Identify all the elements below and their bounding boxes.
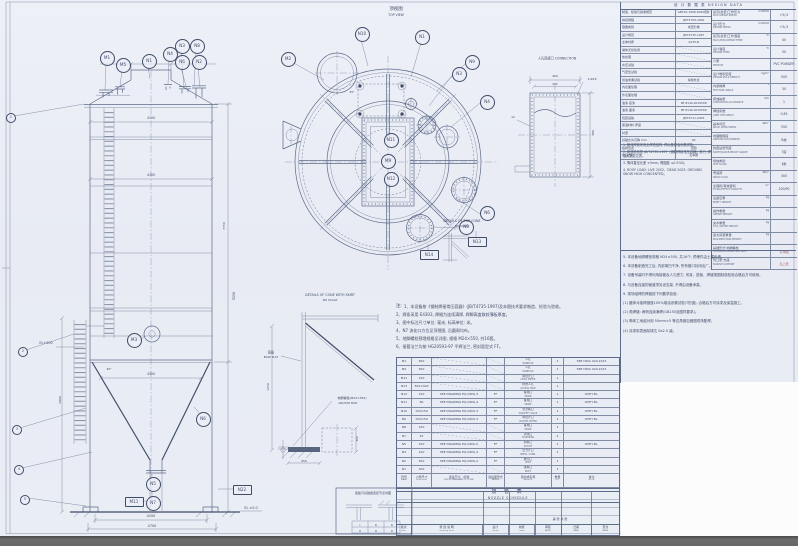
- schedule-cell: WITH BL.: [564, 399, 619, 406]
- schedule-cell: 1: [552, 458, 564, 465]
- nozzle-schedule-row: M2500人孔MANHOLE1SEE DWG 020-2013: [397, 366, 619, 374]
- item: QTY: [552, 479, 563, 482]
- note-line: 9. 现场组焊的焊缝按下列要求检验:: [623, 290, 794, 299]
- design-data-label: 介质MEDIUM: [712, 59, 770, 70]
- schedule-cell: [432, 366, 487, 373]
- design-data-value: [675, 47, 711, 54]
- note-line: 6、接管法兰均按 HG20593-97 平焊法兰, 密封面型式 FF。: [396, 343, 618, 351]
- schedule-cell: [432, 358, 487, 365]
- note-line: 4、N7 流化口方位见顶视图, 沿圆周均布。: [396, 327, 618, 335]
- design-data-label: 保温材料·厚度: [621, 122, 675, 129]
- design-data-row: 包装运输JB/T4711-2003: [621, 115, 711, 123]
- schedule-cell: [487, 366, 505, 373]
- schedule-cell: N2: [397, 458, 412, 465]
- schedule-cell: 1: [552, 366, 564, 373]
- design-data-row: 抗震设防烈度EARTHQUAKE-PROOF GRADE7度: [712, 146, 797, 158]
- design-data-label: 气密性试验: [621, 69, 675, 76]
- drawing-label: 4100: [147, 173, 155, 177]
- revision-label-cell: 设计DSGN: [483, 525, 509, 536]
- schedule-cell: N1: [397, 466, 412, 473]
- nozzle-balloon-3: 3: [12, 425, 22, 435]
- schedule-cell: [487, 424, 505, 431]
- schedule-cell: 150/150: [412, 416, 432, 423]
- service-cell: 进料口INLET: [505, 466, 552, 473]
- schedule-cell: [432, 433, 487, 440]
- design-data-value: [675, 62, 711, 69]
- item: SNOW LOAD: [713, 176, 770, 180]
- design-data-value: +5/-5: [770, 21, 797, 32]
- nozzle-schedule-table: M1500人孔MANHOLE1SEE DWG 020-2013M2500人孔MA…: [396, 357, 620, 503]
- drawing-label: 6: [375, 523, 377, 527]
- design-data-value: [675, 92, 711, 99]
- design-data-row: 气密性试验: [621, 69, 711, 77]
- schedule-cell: 500×400: [412, 383, 432, 390]
- schedule-cell: WITH BL.: [564, 441, 619, 448]
- design-data-label: 油漆·面漆: [621, 107, 675, 114]
- schedule-cell: FF: [487, 441, 505, 448]
- nozzle-balloon-n9: N9: [465, 55, 480, 70]
- item: EMPTY WEIGHT: [713, 201, 770, 205]
- schedule-cell: [432, 375, 487, 382]
- service-cell: 流化口FLUIDIZING: [505, 433, 552, 440]
- drawing-label: TOP VIEW: [388, 13, 404, 17]
- nozzle-balloon-m9: M9: [381, 154, 396, 169]
- schedule-cell: 250: [412, 441, 432, 448]
- nozzle-schedule-row: N1180SEE DRAWING EQ-DWG-4FF备用口SPARE1WITH…: [397, 399, 619, 407]
- schedule-cell: [432, 466, 487, 473]
- design-data-value: [675, 130, 711, 137]
- nozzle-schedule-row: N725流化口FLUIDIZING4: [397, 433, 619, 441]
- design-data-value: JB/T4711-2003: [675, 115, 711, 122]
- schedule-cell: SEE DRAWING EQ-DWG-2: [432, 458, 487, 465]
- item: MEDIUM: [713, 64, 770, 68]
- nozzle-schedule-row: N9150/150SEE DRAWING EQ-DWG-3FF料位计口W/LEV…: [397, 416, 619, 424]
- drawing-label: DETAILS OF TOP CONE: [443, 219, 480, 223]
- item: OUTLET: [505, 445, 551, 448]
- note-line: 3、图中标注尺寸单位: 毫米, 标高单位: 米。: [396, 319, 618, 327]
- design-data-label: 抗震设防烈度EARTHQUAKE-PROOF GRADE: [712, 146, 770, 157]
- scanner-bed-edge: [0, 536, 798, 546]
- schedule-cell: FF: [487, 449, 505, 456]
- design-data-value: [770, 233, 797, 244]
- design-data-value: [675, 122, 711, 129]
- schedule-header-cell: 符号MARK: [397, 474, 412, 487]
- schedule-cell: [564, 375, 619, 382]
- note-line: 1. 罐体焊缝采用全焊透结构, 焊后做煤油渗漏试验。: [623, 143, 711, 148]
- item: CHKD: [509, 530, 534, 533]
- design-data-value: 500: [770, 71, 797, 82]
- drawing-label: 12: [511, 115, 515, 119]
- design-data-row: 设计压力mmH2ODESIGN PRESS.+5/-5: [712, 21, 797, 33]
- schedule-cell: N9: [397, 416, 412, 423]
- design-data-label: 设计堆积密度kg/m³DESIGN BULK DENSITY: [712, 71, 770, 82]
- nozzle-balloon-m11: M11: [125, 497, 144, 507]
- design-data-row: 热处理: [621, 54, 711, 62]
- nozzle-balloon-n1: N1: [142, 54, 157, 69]
- drawing-label: 4100: [147, 116, 155, 120]
- design-data-row: 全容积/有效容积m³TOTAL/EFFECT.CAPACITY100/90: [712, 183, 797, 195]
- item: MANHOLE: [505, 362, 551, 365]
- note-line: 1、本设备按《钢制焊接常压容器》(JB/T4735-1997)及本图技术要求制造…: [396, 303, 618, 311]
- schedule-cell: N10: [397, 408, 412, 415]
- design-data-label: 包装运输: [621, 115, 675, 122]
- drawing-label: 2-Φ18: [588, 77, 597, 81]
- design-data-label: 设计压力mmH2ODESIGN PRESS.: [712, 21, 770, 32]
- design-data-value: +5/-5: [770, 9, 797, 20]
- schedule-cell: [487, 466, 505, 473]
- service-cell: 备用口SPARE: [505, 391, 552, 398]
- note-line: 5、地脚螺栓预埋规格见详图, 规格 M24×550, 共16套。: [396, 335, 618, 343]
- drawing-label: 460: [552, 74, 558, 78]
- revision-label-cell: 校核CHKD: [509, 525, 535, 536]
- nozzle-balloon-n11: N11: [384, 133, 399, 148]
- note-line: 5. 本设备地脚螺栓规格 M24×550, 共16个, 预埋件由土建负责。: [623, 253, 794, 262]
- service-cell: 备用口SPARE: [505, 399, 552, 406]
- item: DESIGN TEMP.: [713, 51, 770, 55]
- notes-lines: 1、本设备按《钢制焊接常压容器》(JB/T4735-1997)及本图技术要求制造…: [396, 303, 618, 351]
- schedule-cell: N13: [397, 383, 412, 390]
- nozzle-schedule-row: M1500人孔MANHOLE1SEE DWG 020-2013: [397, 358, 619, 366]
- design-data-row: 内摩擦角°FRICTION ANGLE30: [712, 84, 797, 96]
- schedule-cell: [487, 358, 505, 365]
- design-data-label: 设备空重kgEMPTY WEIGHT: [712, 196, 770, 207]
- revision-label-cell: 页次PAGE: [592, 525, 619, 536]
- revision-label-cell: 版次REV.: [397, 525, 412, 536]
- drawing-label: DETAILS OF CONE WITH SKIRT: [305, 293, 355, 297]
- design-data-row: 衬里: [621, 130, 711, 138]
- design-data-value: 焊缝检查: [675, 77, 711, 84]
- design-data-label: 操作重量kgOPERAT.WEIGHT: [712, 208, 770, 219]
- schedule-cell: N11: [397, 399, 412, 406]
- revision-grid: [397, 492, 619, 524]
- schedule-cell: 1: [552, 416, 564, 423]
- item: PRESS. CONN.: [505, 453, 551, 456]
- design-data-label: 最大吊装重量kgMAX.ERECTION WEIGHT: [712, 233, 770, 244]
- drawing-label: 300: [355, 436, 359, 441]
- drawing-label: 425: [552, 82, 557, 86]
- nozzle-balloon-n2: N2: [192, 55, 207, 70]
- schedule-cell: N12: [397, 391, 412, 398]
- design-data-value: 0.85: [770, 109, 797, 120]
- schedule-cell: 1: [552, 399, 564, 406]
- note-line: 7. 设备吊装时不得利用接管及人孔受力, 吊耳、垫板、焊缝按图制造检验合格后方可…: [623, 271, 794, 280]
- design-data-value: 7度: [770, 146, 797, 157]
- design-data-value: PE 8140-2010509: [675, 107, 711, 114]
- schedule-cell: FF: [487, 408, 505, 415]
- design-data-row: 设计温度℃DESIGN TEMP.50: [712, 46, 797, 58]
- design-data-row: 保温材料·厚度: [621, 122, 711, 130]
- item: W/LEVEL METER: [505, 420, 551, 423]
- design-data-value: 300: [770, 171, 797, 182]
- item: MANHOLE: [505, 370, 551, 373]
- design-data-value: 100/90: [770, 183, 797, 194]
- item: LEVEL METER: [505, 378, 551, 381]
- item: NOTE: [564, 479, 619, 482]
- design-data-value: PVC POWDER: [770, 59, 797, 70]
- design-data-row: 最高(最低)工作温度℃MAX.(MIN.)OPERAT.TEMP40: [712, 34, 797, 46]
- nozzle-schedule-row: N13500×400检修人孔ACCESS HOLE1: [397, 383, 619, 391]
- schedule-cell: N8: [397, 424, 412, 431]
- nozzle-balloon-2: 2: [18, 347, 28, 357]
- schedule-cell: 300: [412, 466, 432, 473]
- design-data-row: 场地类别SITE CLASSⅡ类: [712, 158, 797, 170]
- nozzle-schedule-row: N8150备用口SPARE1: [397, 424, 619, 432]
- design-data-label: 焊缝系数JOINT EFFICIENCY: [712, 109, 770, 120]
- schedule-cell: 150/150: [412, 408, 432, 415]
- schedule-cell: [564, 449, 619, 456]
- schedule-cell: [432, 424, 487, 431]
- design-data-label: 场地类别SITE CLASS: [712, 158, 770, 169]
- note-line: 6. 本设备制造完工后, 内部清扫干净, 所有管口封闭出厂。: [623, 262, 794, 271]
- item: VENT: [505, 461, 551, 464]
- drawing-label: 780: [591, 130, 595, 136]
- design-data-row: 最高(最低)工作压力mmH2OMAX.OPERAT.PRESS.+5/-5: [712, 9, 797, 21]
- design-data-row: 基本风压N/m²BASIC WIND PRESS.550: [712, 121, 797, 133]
- note-line: 2、焊条采用 E4303, 焊缝为连续满焊, 焊脚高度取较薄板厚度。: [396, 311, 618, 319]
- design-data-row: 腐蚀裕量mmCORROSION ALLOWANCE1: [712, 96, 797, 108]
- nozzle-balloon-4: 4: [14, 465, 24, 475]
- schedule-cell: SEE DWG 020-2013: [564, 366, 619, 373]
- service-cell: 备用口SPARE: [505, 424, 552, 431]
- design-data-row: 煤油渗漏试验焊缝检查: [621, 77, 711, 85]
- item: EARTHQUAKE-PROOF GRADE: [713, 151, 770, 155]
- drawing-label: Ⅱ: [359, 529, 360, 533]
- nozzle-schedule-row: N10150/150SEE DRAWING EQ-DWG-3FF安全阀口W/SA…: [397, 408, 619, 416]
- design-data-value: 550: [770, 121, 797, 132]
- drawing-label: 底板与基础梁连接节点详图: [355, 491, 391, 495]
- nozzle-balloon-n5: N5: [146, 477, 161, 492]
- design-data-label: 全容积/有效容积m³TOTAL/EFFECT.CAPACITY: [712, 183, 770, 194]
- drawing-label: EL ±0.0: [244, 506, 257, 510]
- schedule-cell: 500: [412, 358, 432, 365]
- design-data-label: 基本风压N/m²BASIC WIND PRESS.: [712, 121, 770, 132]
- schedule-cell: SEE DRAWING EQ-DWG-5: [432, 441, 487, 448]
- item: FLUIDIZING: [505, 436, 551, 439]
- schedule-cell: 1: [552, 383, 564, 390]
- schedule-cell: N4: [397, 449, 412, 456]
- nozzle-balloon-n8: N8: [190, 39, 205, 54]
- nozzle-schedule-row: N2500SEE DRAWING EQ-DWG-2FF放空口VENT1: [397, 458, 619, 466]
- drawing-label: 6: [391, 529, 393, 533]
- note-line: 2. 制造检验按 JB/T4735-1997《钢制焊接常压容器》执行, 焊缝系数…: [623, 150, 711, 159]
- drawing-label: 45°: [106, 367, 111, 371]
- design-data-value: PE 8140-2010508: [675, 100, 711, 107]
- design-data-row: 油漆·底漆PE 8140-2010508: [621, 100, 711, 108]
- design-data-row: 内表面处理: [621, 84, 711, 92]
- item: DATE: [562, 530, 591, 533]
- design-data-row: 焊接规程JB/T4709-2000: [621, 17, 711, 25]
- drawing-label: 4300: [147, 372, 155, 376]
- note-line: 3. 筒体直径允差 ±5mm, 椭圆度 ≤0.5%D。: [623, 161, 711, 166]
- drawing-sheet: M1M5N1N4N3N8N6N2M3N6N5N7M11N22M2N10N1N9N…: [0, 0, 798, 536]
- design-data-label: 罐体无损检测: [621, 47, 675, 54]
- drawing-label: EL+500: [39, 341, 52, 345]
- design-data-row: 设计堆积密度kg/m³DESIGN BULK DENSITY500: [712, 71, 797, 83]
- nozzle-balloon-n1: N1: [415, 30, 430, 45]
- design-data-label: 衬里: [621, 130, 675, 137]
- schedule-cell: 150: [412, 424, 432, 431]
- nozzle-schedule-row: N12150SEE DRAWING EQ-DWG-3FF备用口SPARE1WIT…: [397, 391, 619, 399]
- item: MAX.(MIN.)OPERAT.TEMP: [713, 39, 770, 43]
- design-data-row: 油漆·面漆PE 8140-2010509: [621, 107, 711, 115]
- schedule-cell: SEE DRAWING EQ-DWG-3: [432, 408, 487, 415]
- nozzle-balloon-m2: M2: [281, 52, 296, 67]
- nozzle-balloon-m1: M1: [100, 51, 115, 66]
- drawing-label: NO SCALE: [323, 298, 338, 302]
- design-data-value: [770, 196, 797, 207]
- design-data-value: [675, 54, 711, 61]
- item: MAX.ERECTION WEIGHT: [713, 238, 770, 242]
- schedule-cell: FF: [487, 416, 505, 423]
- design-data-value: 常压贮槽: [675, 24, 711, 31]
- design-data-row: 介质MEDIUMPVC POWDER: [712, 59, 797, 71]
- drawing-label: NO SCALE: [455, 224, 470, 228]
- nozzle-schedule-row: M11150料位计口LEVEL METER1: [397, 375, 619, 383]
- drawing-label: 6: [375, 529, 377, 533]
- item: TOTAL/EFFECT.CAPACITY: [713, 188, 770, 192]
- service-cell: 安全阀口W/SAFETY VALVE: [505, 408, 552, 415]
- design-data-row: 设计规范JB/T4735-1997: [621, 32, 711, 40]
- schedule-cell: 1: [552, 375, 564, 382]
- note-line: (4) 涂漆前表面除锈达 Sa2.5 级。: [623, 327, 794, 336]
- item: FACING: [487, 479, 504, 482]
- service-cell: 压力计口PRESS. CONN.: [505, 449, 552, 456]
- design-data-value: Ⅱ类: [770, 158, 797, 169]
- revision-labels: 版次REV.修 改 说 明DESCRIPTION设计DSGN校核CHKD审核AP…: [397, 524, 619, 536]
- item: SPARE: [505, 403, 551, 406]
- design-data-row: 雪载荷N/m²SNOW LOAD300: [712, 171, 797, 183]
- schedule-cell: N7: [397, 433, 412, 440]
- nozzle-balloon-n6: N6: [175, 55, 190, 70]
- notes-heading: 注:: [396, 303, 402, 311]
- schedule-cell: 150: [412, 391, 432, 398]
- schedule-cell: 1: [552, 424, 564, 431]
- schedule-header-cell: 公称尺寸NOM.SIZE: [412, 474, 432, 487]
- drawing-label: ANCHOR BOLT: [338, 401, 357, 405]
- nozzle-balloon-n12: N12: [384, 172, 399, 187]
- design-data-value: [675, 84, 711, 91]
- nozzle-balloon-n6: N6: [196, 412, 211, 427]
- item: SITE CLASS: [713, 163, 770, 167]
- drawing-label: BASE PLAT: [264, 355, 278, 359]
- schedule-header-row: 符号MARK公称尺寸NOM.SIZE连接尺寸、标准SIZE & STANDARD…: [397, 474, 619, 488]
- design-data-label: 充水重量kgFULL WATER WEIGHT: [712, 220, 770, 231]
- schedule-cell: [487, 433, 505, 440]
- design-data-label: 煤油渗漏试验: [621, 77, 675, 84]
- schedule-cell: [564, 458, 619, 465]
- item: CORROSION ALLOWANCE: [713, 101, 770, 105]
- design-data-row: 罐体无损检测: [621, 47, 711, 55]
- design-data-row: 充水重量kgFULL WATER WEIGHT: [712, 220, 797, 232]
- design-data-row: 设备空重kgEMPTY WEIGHT: [712, 196, 797, 208]
- note-line: (1) 罐体对接焊缝做100%煤油渗漏试验(T形缝), 合格后方可涂漆及保温施工…: [623, 299, 794, 308]
- schedule-cell: SEE DRAWING EQ-DWG-3: [432, 391, 487, 398]
- schedule-cell: 1: [552, 466, 564, 473]
- schedule-cell: 1: [552, 408, 564, 415]
- design-data-value: [675, 69, 711, 76]
- item: OPERAT.WEIGHT: [713, 213, 770, 217]
- item: SERVICE: [505, 479, 551, 482]
- design-data-label: 内摩擦角°FRICTION ANGLE: [712, 84, 770, 95]
- schedule-cell: 4: [552, 433, 564, 440]
- item: SIZE & STANDARD OF CONN.: [432, 479, 486, 482]
- nozzle-balloon-n22: N22: [233, 485, 252, 495]
- design-data-value: JB/T4735-1997: [675, 32, 711, 39]
- schedule-cell: [564, 424, 619, 431]
- service-cell: 卸料口OUTLET: [505, 441, 552, 448]
- schedule-cell: 1: [552, 391, 564, 398]
- schedule-cell: M1: [397, 358, 412, 365]
- item: JOINT EFFICIENCY: [713, 114, 770, 118]
- design-data-left-table: 制造、检验与验收规范GB150-1998·2000增补焊接规程JB/T4709-…: [621, 9, 711, 160]
- design-data-table: 设 计 数 据 表 DESIGN DATA 制造、检验与验收规范GB150-19…: [620, 2, 796, 383]
- item: FULL WATER WEIGHT: [713, 225, 770, 229]
- nozzle-schedule-row: N1300进料口INLET1: [397, 466, 619, 474]
- drawing-label: 1250: [266, 383, 270, 391]
- nozzle-balloon-n3: N3: [452, 67, 467, 82]
- design-data-label: 外表面处理: [621, 92, 675, 99]
- schedule-header-cell: 连接尺寸、标准SIZE & STANDARD OF CONN.: [432, 474, 487, 487]
- schedule-cell: 25: [412, 433, 432, 440]
- design-data-row: 外表面处理: [621, 92, 711, 100]
- item: SPARE: [505, 395, 551, 398]
- blank-area: [621, 382, 798, 536]
- design-data-value: GB150-1998·2000增补: [675, 9, 711, 16]
- drawing-label: 4700: [148, 524, 157, 528]
- design-data-row: 焊缝系数JOINT EFFICIENCY0.85: [712, 109, 797, 121]
- item: DESCRIPTION: [412, 530, 482, 533]
- drawing-label: 5800: [58, 396, 62, 404]
- schedule-cell: FF: [487, 391, 505, 398]
- item: APPD: [535, 530, 560, 533]
- schedule-cell: [564, 466, 619, 473]
- design-data-label: 热处理: [621, 54, 675, 61]
- design-notes-lower: 5. 本设备地脚螺栓规格 M24×550, 共16个, 预埋件由土建负责。6. …: [621, 250, 796, 336]
- design-data-label: 最高(最低)工作压力mmH2OMAX.OPERAT.PRESS.: [712, 9, 770, 20]
- item: DESIGN BULK DENSITY: [713, 76, 770, 80]
- revision-label-cell: 修 改 说 明DESCRIPTION: [412, 525, 483, 536]
- drawing-label: 4200: [147, 514, 156, 518]
- item: W/SAFETY VALVE: [505, 412, 551, 415]
- drawing-label: 9250: [232, 292, 236, 300]
- design-notes-upper: 1. 罐体焊缝采用全焊透结构, 焊后做煤油渗漏试验。2. 制造检验按 JB/T4…: [621, 141, 712, 179]
- service-cell: 人孔MANHOLE: [505, 358, 552, 365]
- schedule-cell: SEE DRAWING EQ-DWG-3: [432, 416, 487, 423]
- design-data-label: 最高(最低)工作温度℃MAX.(MIN.)OPERAT.TEMP: [712, 34, 770, 45]
- schedule-cell: N5: [397, 441, 412, 448]
- nozzle-balloon-n3: N3: [175, 39, 190, 54]
- nozzle-schedule-rows: M1500人孔MANHOLE1SEE DWG 020-2013M2500人孔MA…: [397, 358, 619, 474]
- item: DSGN: [483, 530, 508, 533]
- item: ACCESS HOLE: [505, 387, 551, 390]
- design-data-value: B类: [770, 133, 797, 144]
- design-data-label: 油漆·底漆: [621, 100, 675, 107]
- design-data-label: 地面粗糙度GROUND ROUGHNESS: [712, 133, 770, 144]
- nozzle-balloon-m5: M5: [116, 58, 131, 73]
- schedule-cell: 1: [552, 449, 564, 456]
- revision-table: 版次REV.修 改 说 明DESCRIPTION设计DSGN校核CHKD审核AP…: [396, 491, 620, 536]
- nozzle-schedule-row: N5250SEE DRAWING EQ-DWG-5FF卸料口OUTLET1WIT…: [397, 441, 619, 449]
- service-cell: 检修人孔ACCESS HOLE: [505, 383, 552, 390]
- design-data-value: 30: [770, 84, 797, 95]
- note-line: (3) 筒体工地组对用 50mm×5 等边角钢加固圈现场配焊。: [623, 317, 794, 326]
- item: DESIGN PRESS.: [713, 26, 770, 30]
- schedule-header-cell: 数量QTY: [552, 474, 564, 487]
- item: BASIC WIND PRESS.: [713, 126, 770, 130]
- schedule-cell: [564, 433, 619, 440]
- design-data-row: 容器类别常压贮槽: [621, 24, 711, 32]
- schedule-cell: 1: [552, 358, 564, 365]
